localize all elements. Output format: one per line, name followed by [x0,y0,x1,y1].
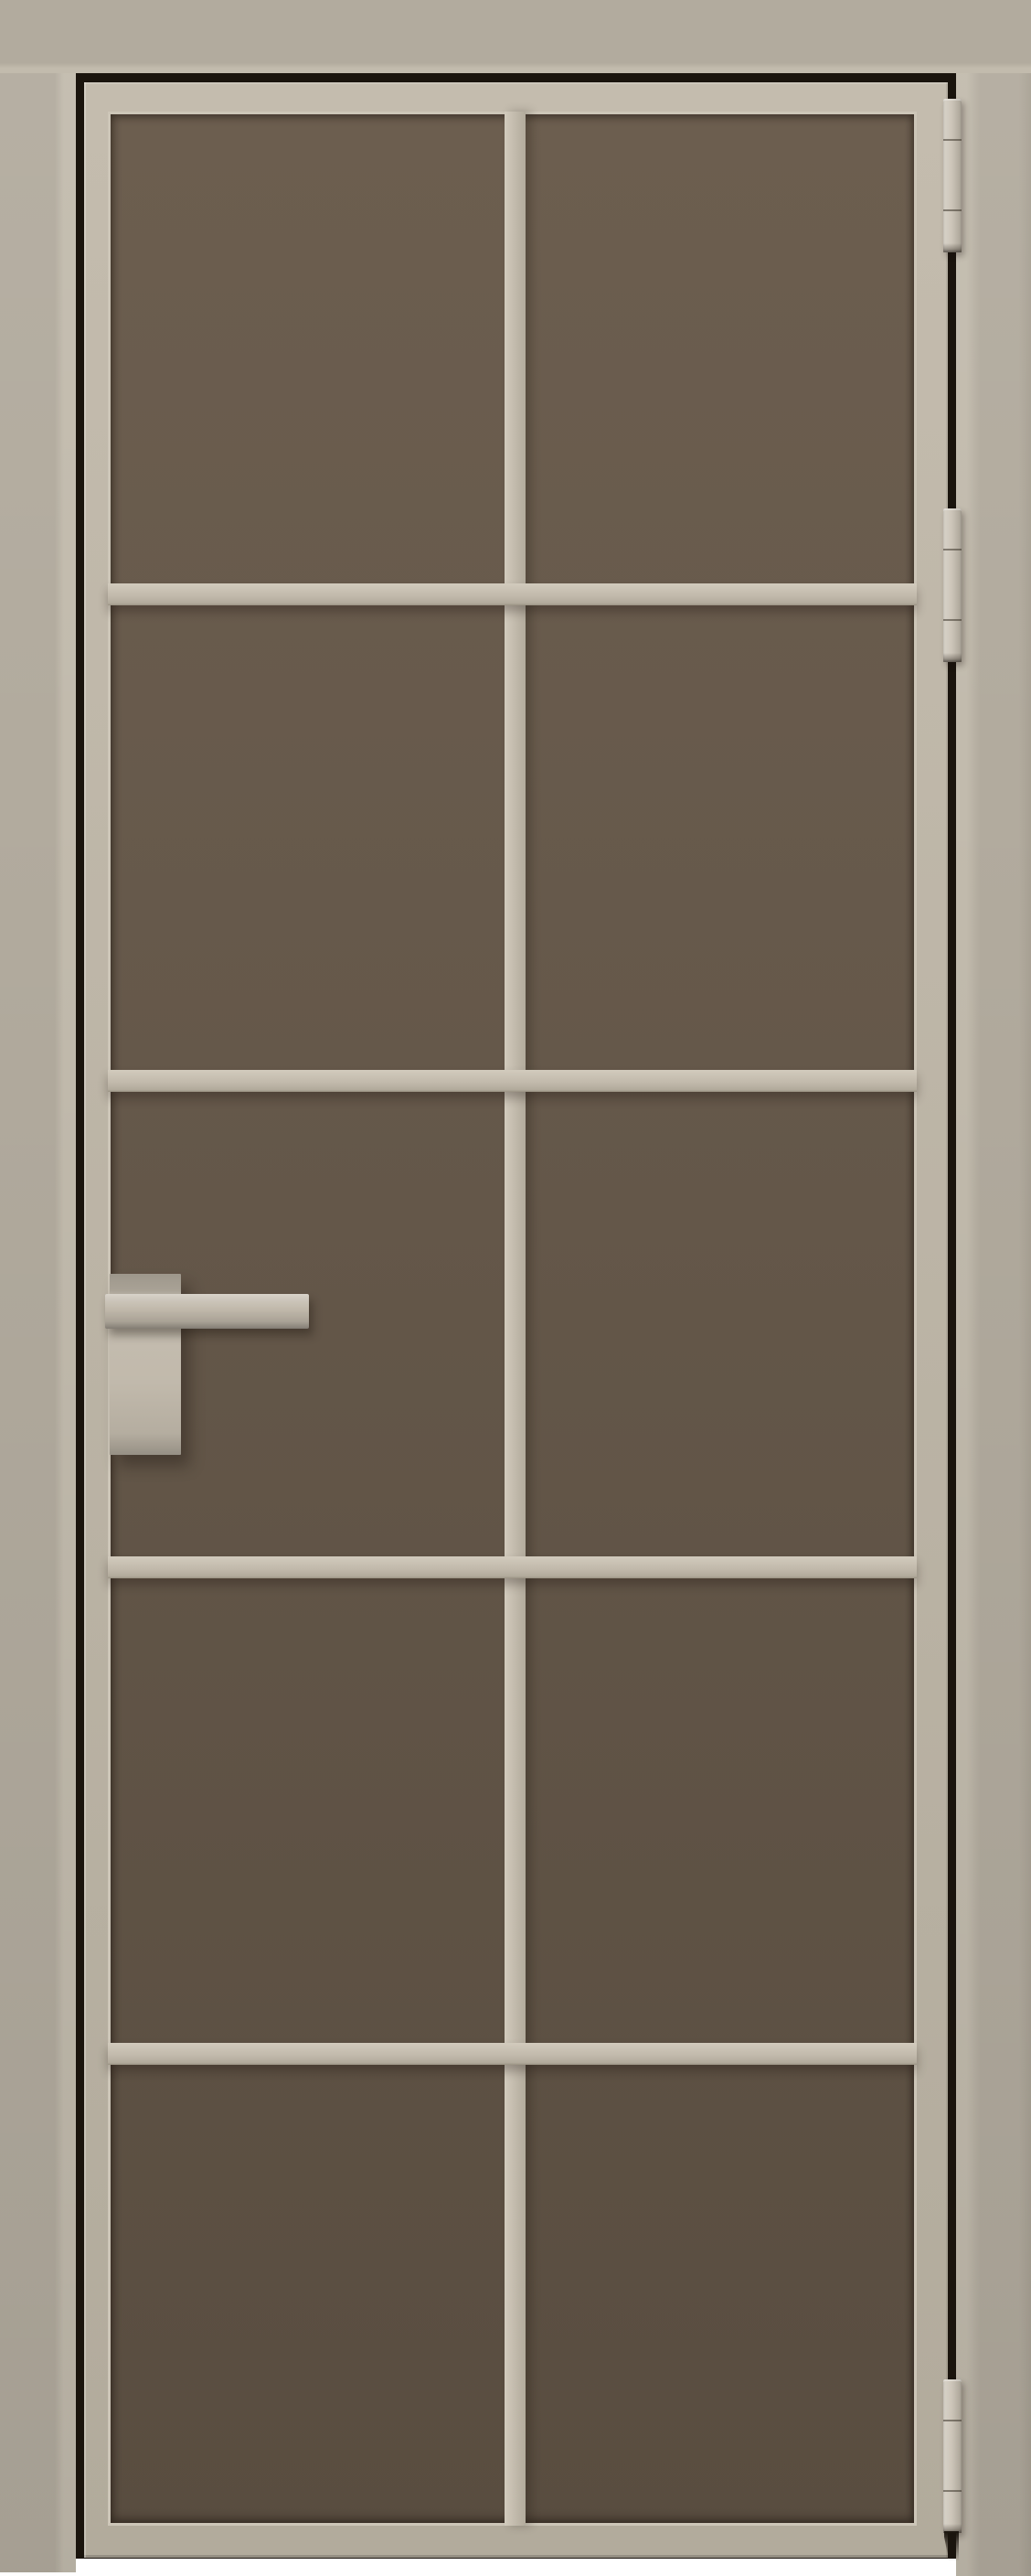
hinge-top [943,99,962,252]
horizontal-muntin-4 [108,2043,917,2065]
horizontal-muntin-1 [108,583,917,605]
hinge-knuckle-seam [943,619,962,621]
hinge-upper-middle [943,508,962,662]
hinge-tip [943,653,962,662]
door-casing-right [956,0,1031,2576]
hinge-knuckle-seam [943,2490,962,2492]
door-leaf [84,82,948,2558]
horizontal-muntin-3 [108,1556,917,1578]
hinge-knuckle-seam [943,209,962,211]
door-casing-left [0,0,76,2572]
hinge-knuckle-seam [943,549,962,550]
hinge-tip [943,243,962,252]
hinge-knuckle-seam [943,139,962,141]
door-product-image [0,0,1031,2576]
hinge-knuckle-seam [943,2420,962,2421]
horizontal-muntin-2 [108,1070,917,1092]
door-casing-top [0,0,1031,73]
handle-lever [105,1294,309,1329]
vertical-muntin [505,112,526,2526]
hinge-bottom [943,2379,962,2533]
